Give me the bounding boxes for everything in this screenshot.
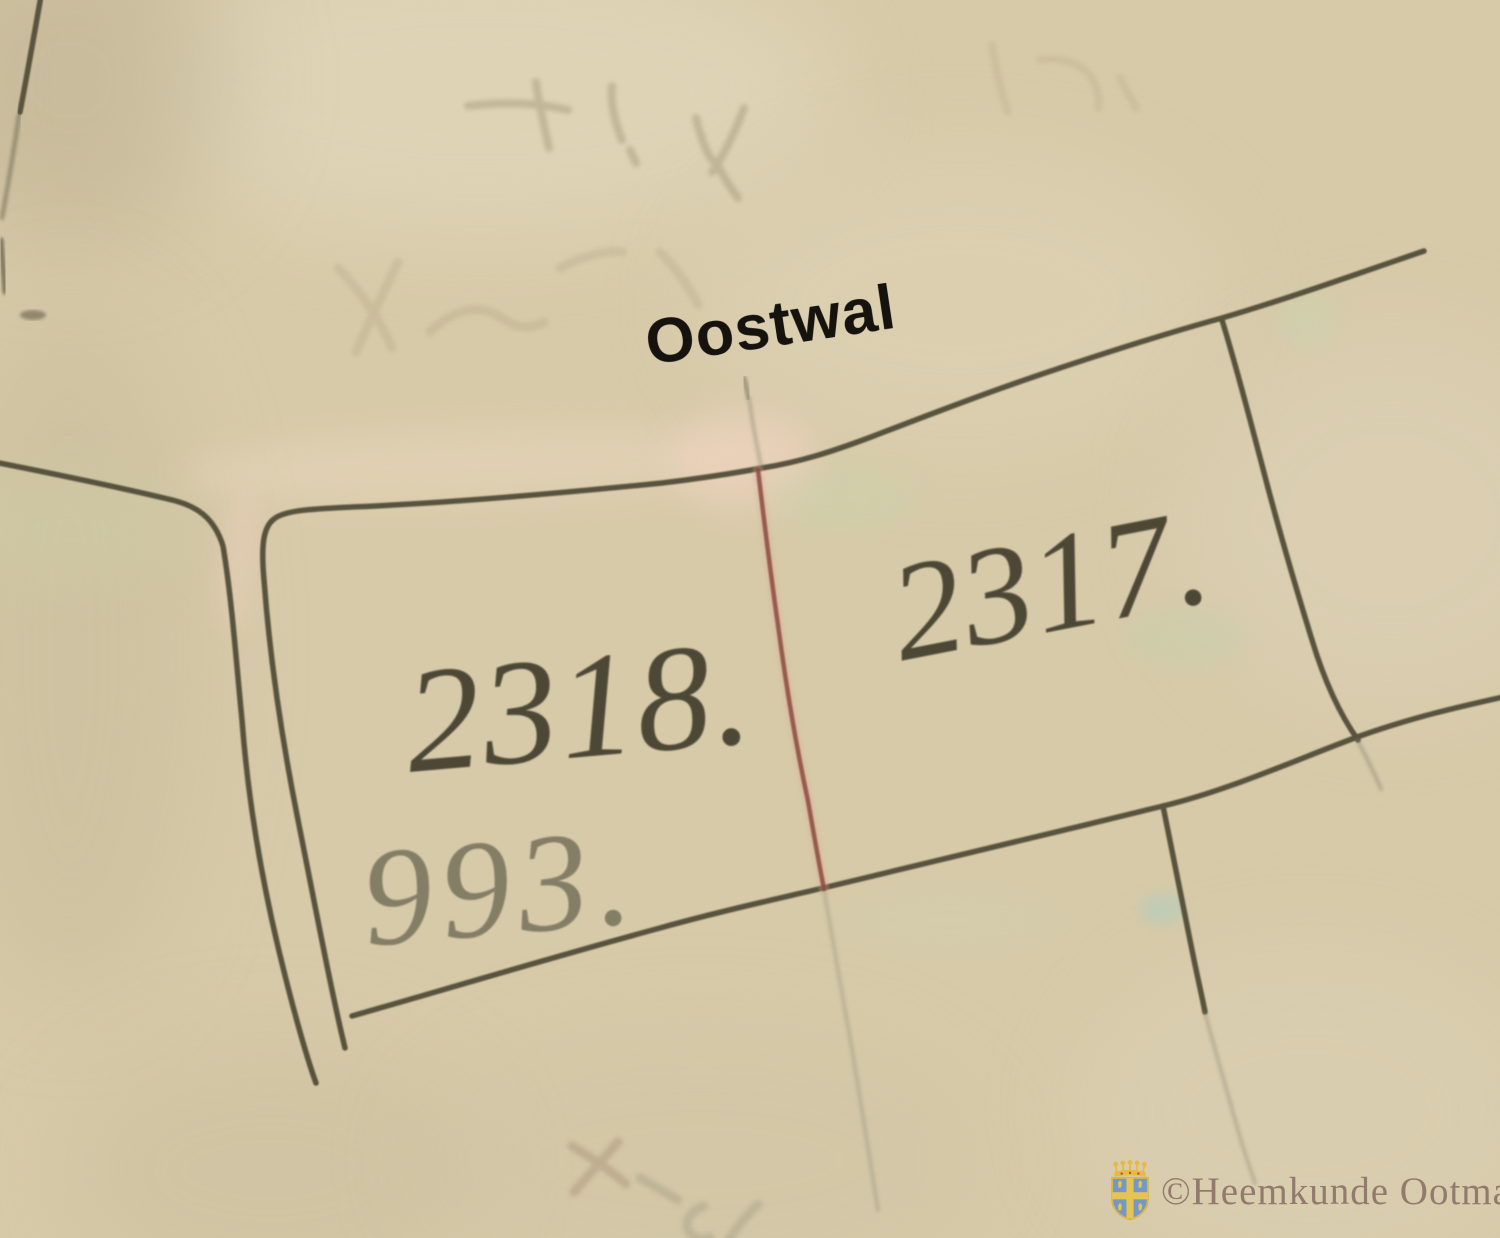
ootmarsum-coat-of-arms-icon	[1106, 1160, 1154, 1222]
parcel-2317-east-boundary	[1222, 320, 1358, 740]
south-branch-boundary-faint	[1205, 1013, 1255, 1183]
pencil-annotation-top	[468, 82, 744, 198]
map-canvas: 2318. 2317. 993. Oostwal	[0, 0, 1500, 1238]
pencil-ghost-marks	[992, 45, 1136, 112]
center-boundary-faint	[824, 890, 878, 1210]
road-south-edge-and-lane-left	[0, 462, 316, 1083]
edge-stub	[1, 240, 5, 292]
north-stub-boundary	[749, 398, 761, 466]
parcel-2317-east-boundary-faint	[1358, 741, 1381, 789]
parcel-label-2318: 2318.	[399, 617, 758, 797]
crown	[1113, 1160, 1146, 1177]
corner-line-faint	[2, 115, 19, 218]
parcel-label-993: 993.	[356, 806, 644, 970]
shield	[1112, 1178, 1148, 1220]
pencil-annotation-bottom	[572, 1142, 758, 1238]
watermark: ©Heemkunde Ootmarsum	[1106, 1160, 1500, 1222]
corner-line	[20, 0, 41, 112]
red-boundary-2318-2317	[758, 470, 824, 889]
north-stub-tick	[744, 378, 749, 398]
parcel-boundaries	[0, 0, 1500, 1238]
ink-blot	[20, 310, 46, 320]
copyright-text: ©Heemkunde Ootmarsum	[1161, 1169, 1500, 1214]
south-branch-boundary	[1163, 806, 1205, 1012]
